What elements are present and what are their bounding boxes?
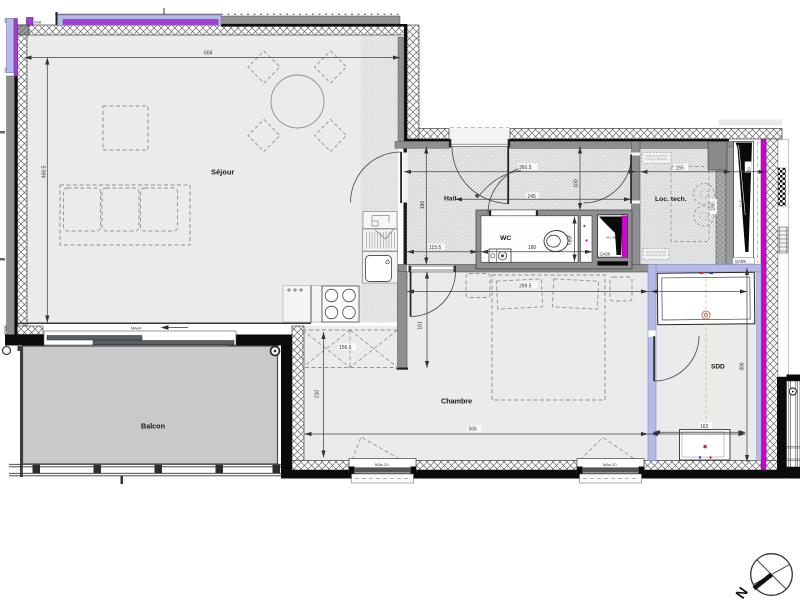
svg-text:468.5: 468.5 — [42, 166, 48, 179]
svg-text:156.5: 156.5 — [339, 345, 352, 351]
svg-text:WC: WC — [500, 235, 511, 242]
svg-text:155: 155 — [676, 166, 685, 172]
svg-text:GA06: GA06 — [600, 252, 611, 257]
svg-text:43 x 46: 43 x 46 — [606, 236, 616, 240]
svg-text:A08: A08 — [34, 20, 42, 25]
svg-text:115.5: 115.5 — [429, 245, 441, 251]
svg-text:MAx 20: MAx 20 — [375, 462, 389, 467]
svg-text:399.5: 399.5 — [519, 284, 532, 290]
svg-text:190: 190 — [711, 202, 717, 211]
svg-text:Loc. tech.: Loc. tech. — [655, 196, 687, 203]
svg-text:210: 210 — [315, 390, 321, 399]
svg-text:MAx 20: MAx 20 — [603, 462, 617, 467]
svg-text:GA09: GA09 — [735, 259, 746, 264]
svg-text:Chambre: Chambre — [441, 397, 472, 406]
svg-text:245: 245 — [528, 194, 537, 200]
svg-text:604: 604 — [204, 51, 213, 57]
svg-text:100: 100 — [574, 179, 580, 188]
svg-text:Balcon: Balcon — [141, 422, 165, 431]
svg-text:SDD: SDD — [711, 364, 725, 371]
svg-text:50: 50 — [747, 167, 752, 172]
svg-text:190: 190 — [420, 201, 426, 210]
svg-text:80: 80 — [568, 237, 574, 243]
svg-text:360.5: 360.5 — [519, 165, 532, 171]
svg-text:Hall: Hall — [444, 196, 457, 203]
svg-text:MAx0: MAx0 — [131, 326, 142, 331]
svg-text:161: 161 — [418, 321, 424, 330]
svg-text:566: 566 — [469, 427, 478, 433]
svg-text:Séjour: Séjour — [211, 168, 234, 177]
svg-text:180: 180 — [528, 245, 537, 251]
svg-text:3+..8: 3+..8 — [738, 200, 742, 207]
svg-text:306: 306 — [740, 362, 746, 371]
svg-text:162: 162 — [700, 424, 709, 430]
